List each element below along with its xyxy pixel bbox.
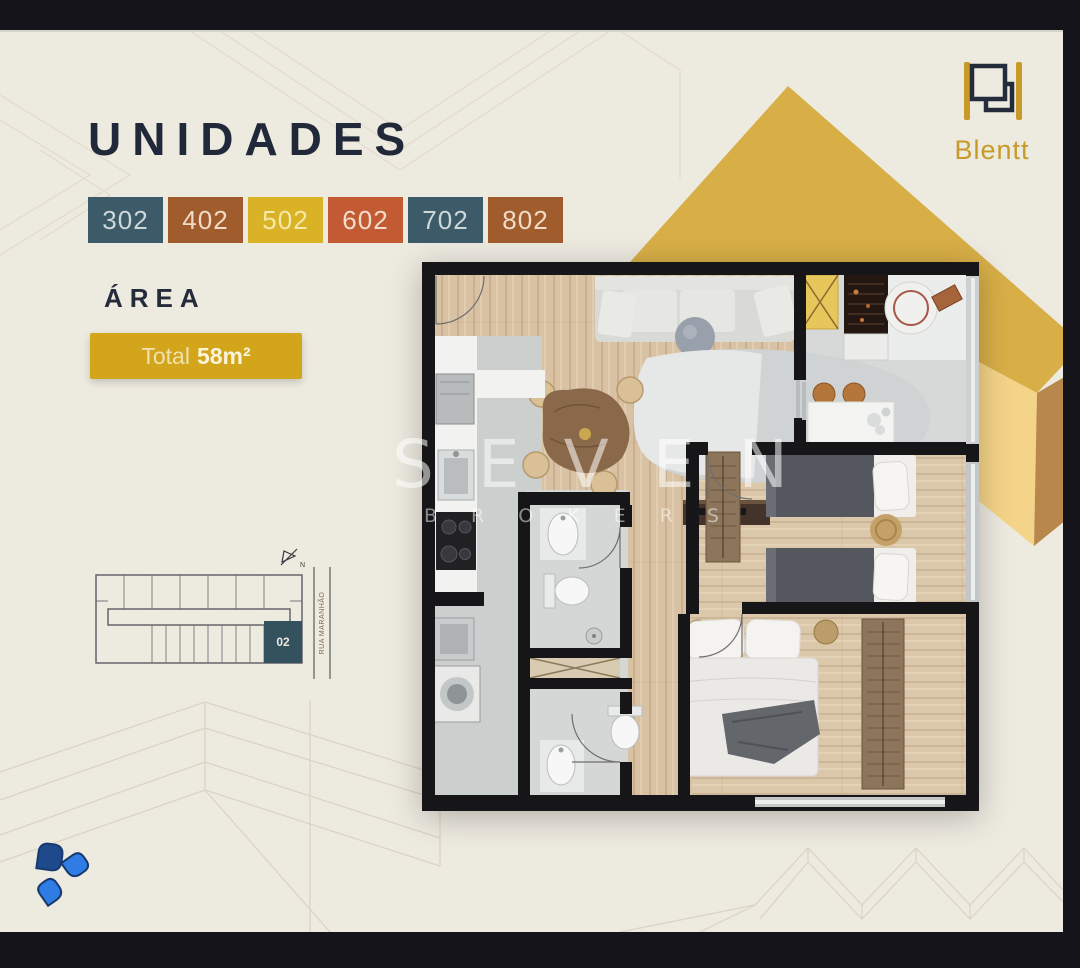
unit-chip-502[interactable]: 502 [248,197,323,243]
unit-chip-802[interactable]: 802 [488,197,563,243]
unit-chip-602[interactable]: 602 [328,197,403,243]
area-total-badge: Total 58m² [90,333,302,379]
footer-petal-logo-icon [26,836,92,908]
unit-chip-302[interactable]: 302 [88,197,163,243]
north-label: N [300,562,305,569]
unit-chip-label: 502 [262,205,308,236]
unit-chip-label: 702 [422,205,468,236]
letterbox-bottom-bar [0,932,1080,968]
unit-chip-702[interactable]: 702 [408,197,483,243]
unit-chip-label: 602 [342,205,388,236]
brand-logo: Blentt [940,58,1044,166]
brand-name: Blentt [940,135,1044,166]
brand-logo-icon [940,58,1044,128]
floor-plan [422,262,979,811]
unit-chip-label: 802 [502,205,548,236]
street-name: RUA MARANHÃO [317,592,326,655]
letterbox-top-bar [0,0,1080,30]
slide-canvas: UNIDADES 302 402 502 602 702 802 ÁREA To… [0,0,1080,968]
letterbox-right-bar [1063,0,1080,968]
unit-chip-label: 302 [102,205,148,236]
area-total-prefix: Total [141,343,190,370]
keyplan-unit-number: 02 [276,635,290,649]
page-title: UNIDADES [88,116,416,162]
north-arrow-icon: N [281,549,305,569]
area-heading: ÁREA [104,283,206,314]
unit-selector: 302 402 502 602 702 802 [88,197,563,243]
unit-chip-label: 402 [182,205,228,236]
top-divider-line [0,30,1080,32]
area-total-value: 58m² [197,343,251,370]
keyplan: 02 N RUA MARANHÃO [88,545,338,685]
street-marker: RUA MARANHÃO [314,567,330,679]
unit-chip-402[interactable]: 402 [168,197,243,243]
